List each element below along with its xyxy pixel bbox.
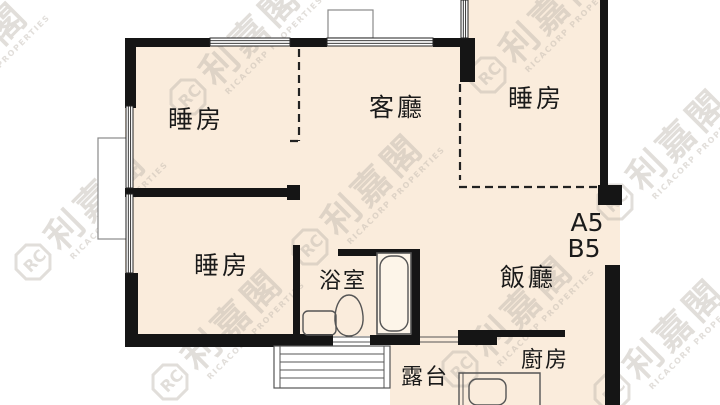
wall: [411, 249, 420, 337]
wall: [598, 185, 622, 205]
wall: [125, 188, 295, 197]
window: [126, 194, 133, 273]
wall: [293, 245, 300, 337]
room-label-bedroom-top-left: 睡房: [168, 105, 224, 134]
wall: [460, 38, 475, 82]
wall: [458, 337, 497, 345]
unit-label-b5: B5: [567, 234, 600, 263]
room-label-dining-room: 飯廳: [500, 263, 556, 292]
room-label-kitchen: 廚房: [521, 348, 569, 373]
floorplan-image: RC 利嘉閣 RICACORP PROPERTIES: [0, 0, 720, 405]
window: [461, 0, 468, 38]
room-label-living-room: 客廳: [369, 93, 425, 122]
room-label-bedroom-top-right: 睡房: [508, 84, 564, 113]
balcony-railing: [274, 346, 390, 388]
window: [327, 38, 433, 46]
wall: [125, 38, 210, 47]
room-label-bedroom-mid-left: 睡房: [194, 251, 250, 280]
wall: [290, 38, 327, 47]
room-label-balcony: 露台: [401, 365, 449, 390]
wall: [125, 334, 333, 347]
room-label-bathroom: 浴室: [319, 269, 367, 294]
ac-platform-box: [98, 138, 127, 239]
wall: [125, 38, 136, 108]
floorplan-canvas: RC 利嘉閣 RICACORP PROPERTIES: [0, 0, 720, 405]
wall: [287, 185, 300, 200]
railing-frame: [274, 346, 390, 388]
window: [210, 38, 290, 46]
wall: [458, 330, 565, 337]
bay-window-box: [328, 10, 373, 38]
wall: [600, 0, 608, 185]
window: [126, 106, 133, 188]
unit-label-a5: A5: [570, 208, 603, 237]
wall: [605, 265, 620, 405]
bathtub: [377, 253, 411, 334]
